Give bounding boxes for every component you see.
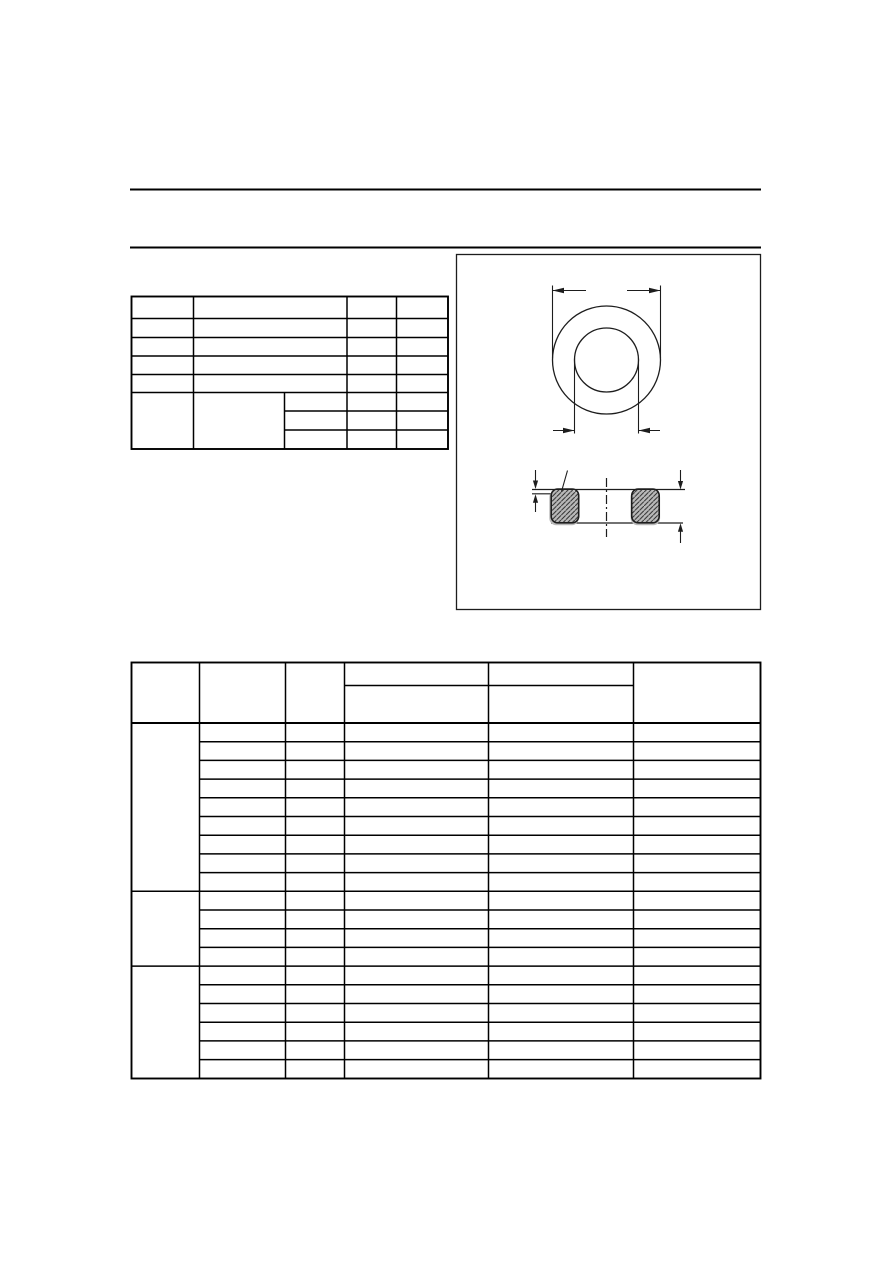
- arrowhead-down-icon: [678, 481, 683, 490]
- arrowhead-down-icon: [533, 481, 538, 490]
- toroid-cross-section: [532, 470, 685, 543]
- datasheet-page: [0, 0, 893, 1263]
- specification-table-border: [132, 663, 761, 1079]
- hatched-core: [632, 489, 660, 523]
- arrowhead-right-icon: [649, 288, 661, 294]
- inner-diameter-dimension: [553, 359, 660, 434]
- quick-reference-table-border: [132, 297, 449, 450]
- dimension-drawing: [457, 255, 761, 610]
- outer-circle: [553, 306, 661, 414]
- drawing-frame: [457, 255, 761, 610]
- left-core-section: [549, 489, 578, 525]
- arrowhead-left-icon: [553, 288, 565, 294]
- arrowhead-up-icon: [678, 523, 683, 532]
- page-canvas: [0, 0, 893, 1263]
- right-core-section: [631, 489, 660, 525]
- toroid-top-view: [553, 286, 661, 434]
- quick-reference-table: [132, 297, 449, 450]
- hatched-core: [551, 489, 579, 523]
- inner-circle: [575, 328, 639, 392]
- arrowhead-right-icon: [563, 428, 575, 434]
- core-height-dimension: [678, 470, 683, 543]
- specification-table: [132, 663, 761, 1079]
- arrowhead-left-icon: [639, 428, 651, 434]
- header-rules: [130, 190, 761, 248]
- coating-thickness-dimension: [533, 470, 538, 512]
- arrowhead-up-icon: [533, 494, 538, 503]
